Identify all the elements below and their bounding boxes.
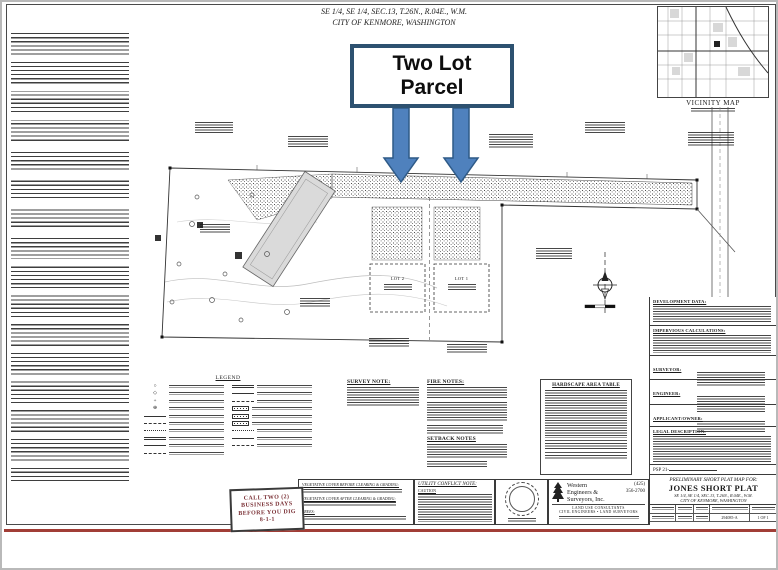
survey-note: SURVEY NOTE: (347, 379, 422, 407)
development-data-title: DEVELOPMENT DATA: (653, 299, 774, 304)
titleblock-job-number: 294085-A (710, 514, 750, 523)
company-tagline-2: CIVIL ENGINEERS • LAND SURVEYORS (552, 510, 645, 514)
lot-2-area-text (384, 284, 412, 291)
hardscape-area-table: HARDSCAPE AREA TABLE (540, 379, 632, 475)
vicinity-map-streets (658, 7, 768, 97)
utility-note-text (418, 494, 492, 522)
map-annotation (536, 248, 572, 260)
dig-stamp-number: 8-1-1 (260, 517, 275, 525)
surveyor-title: SURVEYOR: (653, 367, 681, 372)
sheet-header: SE 1/4, SE 1/4, SEC.13, T.26N., R.04E., … (252, 7, 536, 29)
veg-trees-title: TREES: (302, 509, 410, 514)
hardscape-table-rows (545, 390, 627, 438)
setback-notes-text (427, 461, 487, 467)
vicinity-site-marker (714, 41, 720, 47)
surveyor-seal-box (495, 479, 548, 525)
psp-blank-line (669, 467, 717, 471)
hardscape-table-total (545, 455, 627, 460)
setback-notes: SETBACK NOTES (427, 436, 511, 467)
legend-column-right (232, 384, 312, 456)
engineer-title: ENGINEER: (653, 391, 680, 396)
map-annotation (447, 344, 487, 354)
survey-note-title: SURVEY NOTE: (347, 379, 422, 385)
company-phone: (425) 356-2700 (626, 482, 645, 503)
veg-after-value (302, 502, 396, 506)
map-annotation (585, 122, 625, 134)
hardscape-table-subtotal (545, 443, 627, 450)
sheet-header-city-line: CITY OF KENMORE, WASHINGTON (252, 18, 536, 29)
legal-description-title: LEGAL DESCRIPTION: (653, 429, 774, 434)
legend: LEGEND ○ ◇ + ⊕ (144, 375, 312, 477)
two-lot-parcel-callout: Two Lot Parcel (350, 44, 514, 108)
impervious-calcs-section: IMPERVIOUS CALCULATIONS: (650, 325, 777, 355)
sheet-header-section-line: SE 1/4, SE 1/4, SEC.13, T.26N., R.04E., … (252, 7, 536, 18)
psp-label: PSP 21- (653, 468, 669, 473)
impervious-calcs-text (653, 335, 771, 353)
lot-2-label: LOT 2 (370, 276, 425, 281)
slide-accent-line (4, 529, 776, 532)
data-panel: DEVELOPMENT DATA: IMPERVIOUS CALCULATION… (649, 297, 777, 525)
titleblock-sheet-number: 1 OF 1 (750, 514, 776, 523)
veg-after-title: VEGETATIVE COVER AFTER CLEARING & GRADIN… (302, 496, 410, 501)
company-address-text (559, 516, 639, 519)
survey-note-text (347, 387, 419, 407)
veg-trees-value (302, 516, 406, 520)
utility-caution-label: CAUTION (418, 488, 491, 493)
map-annotation (369, 338, 409, 348)
scale-bar (585, 305, 615, 308)
seal-date-text (508, 518, 536, 522)
plat-map-slide: SE 1/4, SE 1/4, SEC.13, T.26N., R.04E., … (0, 0, 778, 570)
applicant-owner-section: APPLICANT/OWNER: (650, 404, 777, 426)
call-before-you-dig-stamp: CALL TWO (2) BUSINESS DAYS BEFORE YOU DI… (229, 487, 304, 533)
vegetative-cover-box: VEGETATIVE COVER BEFORE CLEARING & GRADI… (298, 479, 414, 525)
fire-notes-title: FIRE NOTES: (427, 379, 511, 385)
fire-notes-text (427, 387, 507, 399)
setback-notes-title: SETBACK NOTES (427, 436, 511, 442)
callout-arrows (350, 108, 514, 186)
company-title-box: Western Engineers & Surveyors, Inc. (425… (548, 479, 649, 525)
surveyor-section: SURVEYOR: (650, 355, 777, 379)
surveyor-seal-icon (505, 482, 539, 516)
titleblock-field-grid: 294085-A 1 OF 1 (650, 504, 777, 522)
evergreen-tree-icon (552, 482, 564, 502)
company-name: Western Engineers & Surveyors, Inc. (567, 482, 605, 503)
veg-before-title: VEGETATIVE COVER BEFORE CLEARING & GRADI… (302, 482, 410, 487)
down-arrow-icon (444, 108, 478, 182)
map-annotation (300, 298, 330, 308)
utility-note-title: UTILITY CONFLICT NOTE: (418, 482, 491, 487)
map-annotation (688, 132, 734, 146)
fire-notes-text (427, 425, 503, 435)
development-data-text (653, 306, 771, 322)
fire-notes-text (427, 402, 507, 422)
vicinity-map (657, 6, 769, 98)
title-block: PRELIMINARY SHORT PLAT MAP FOR: JONES SH… (650, 474, 777, 504)
titleblock-project-title: JONES SHORT PLAT (652, 483, 775, 493)
divider (552, 504, 645, 505)
legal-description-section: LEGAL DESCRIPTION: (650, 426, 777, 464)
callout-line-1: Two Lot (393, 52, 472, 76)
legal-description-text (653, 436, 771, 462)
engineer-section: ENGINEER: (650, 379, 777, 404)
general-notes-column (11, 33, 129, 481)
impervious-calcs-title: IMPERVIOUS CALCULATIONS: (653, 328, 774, 333)
north-arrow (593, 252, 617, 314)
lot-1-label: LOT 1 (434, 276, 489, 281)
map-annotation (200, 224, 230, 234)
legend-title: LEGEND (144, 375, 312, 381)
setback-notes-text (427, 444, 507, 458)
psp-number-row: PSP 21- (650, 464, 777, 474)
veg-before-value (302, 489, 402, 493)
utility-conflict-note: UTILITY CONFLICT NOTE: CAUTION (414, 479, 495, 525)
titleblock-city-line: CITY OF KENMORE, WASHINGTON (652, 498, 775, 503)
map-annotation (288, 136, 328, 148)
hardscape-table-title: HARDSCAPE AREA TABLE (545, 383, 627, 388)
map-annotation (195, 122, 233, 134)
callout-line-2: Parcel (400, 76, 463, 100)
lot-1-area-text (448, 284, 476, 291)
fire-notes: FIRE NOTES: (427, 379, 511, 435)
applicant-owner-title: APPLICANT/OWNER: (653, 416, 703, 421)
development-data-section: DEVELOPMENT DATA: (650, 297, 777, 325)
down-arrow-icon (384, 108, 418, 182)
legend-column-left: ○ ◇ + ⊕ (144, 384, 224, 456)
